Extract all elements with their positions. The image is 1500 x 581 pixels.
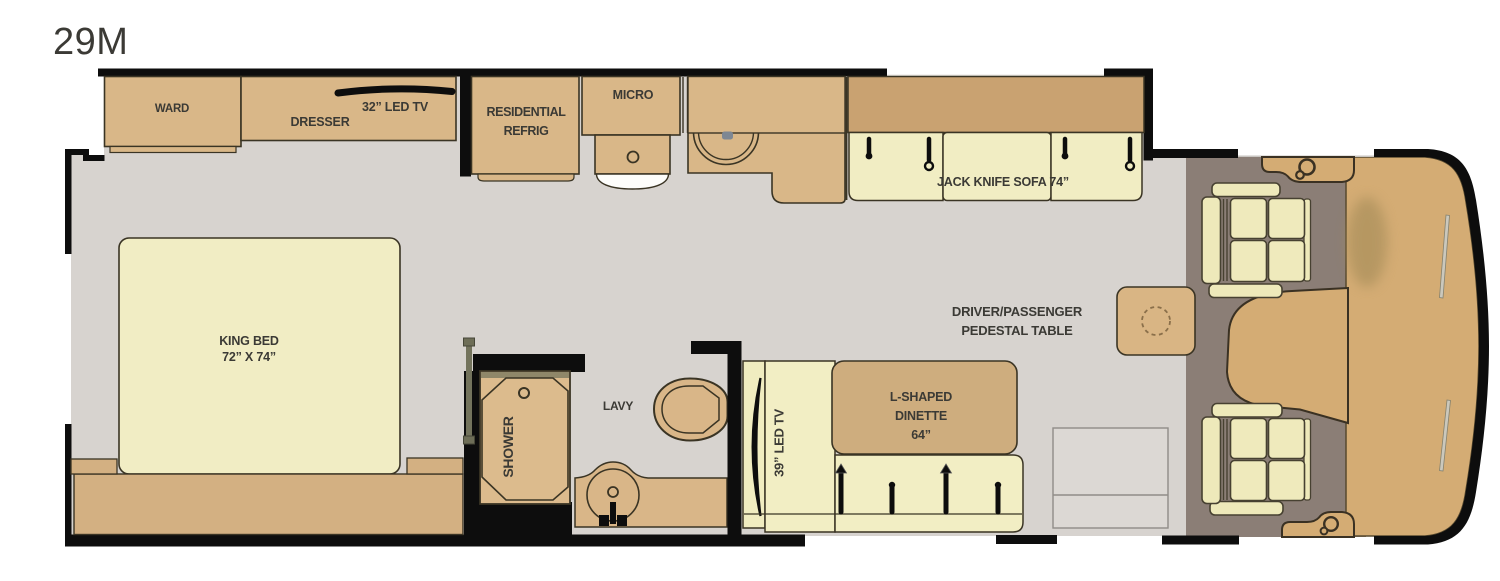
svg-text:WARD: WARD: [155, 103, 189, 115]
svg-text:RESIDENTIAL: RESIDENTIAL: [487, 105, 567, 119]
svg-text:SHOWER: SHOWER: [500, 416, 516, 477]
svg-text:JACK KNIFE SOFA 74”: JACK KNIFE SOFA 74”: [937, 175, 1069, 189]
svg-text:L-SHAPED: L-SHAPED: [890, 390, 952, 404]
svg-text:PEDESTAL TABLE: PEDESTAL TABLE: [961, 323, 1073, 338]
svg-text:KING BED: KING BED: [219, 334, 279, 348]
svg-text:DRIVER/PASSENGER: DRIVER/PASSENGER: [952, 304, 1083, 319]
svg-text:72” X 74”: 72” X 74”: [222, 350, 276, 364]
svg-text:MICRO: MICRO: [613, 88, 654, 102]
svg-text:DRESSER: DRESSER: [290, 115, 349, 129]
svg-text:REFRIG: REFRIG: [504, 124, 549, 138]
svg-text:DINETTE: DINETTE: [895, 409, 947, 423]
svg-text:32” LED TV: 32” LED TV: [362, 100, 429, 114]
svg-text:29M: 29M: [53, 21, 128, 63]
svg-text:39” LED TV: 39” LED TV: [772, 408, 787, 476]
svg-text:LAVY: LAVY: [603, 399, 634, 413]
svg-text:64”: 64”: [911, 428, 931, 442]
